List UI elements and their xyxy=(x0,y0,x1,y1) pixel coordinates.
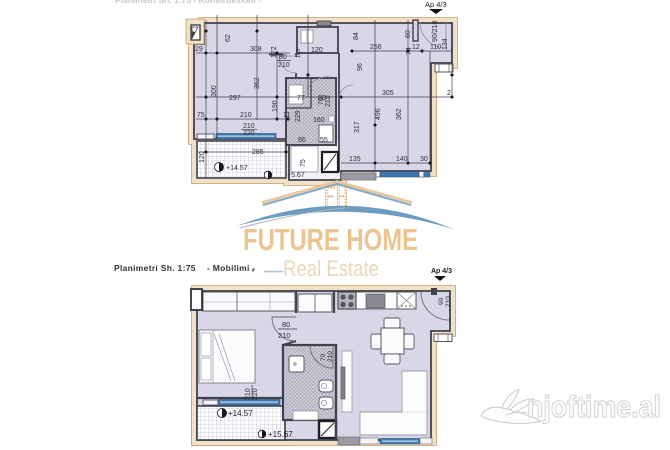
svg-text:Real Estate: Real Estate xyxy=(283,256,379,281)
svg-text:75: 75 xyxy=(300,159,307,167)
svg-text:210: 210 xyxy=(240,112,252,119)
svg-text:220: 220 xyxy=(252,388,259,400)
svg-text:Ap 4/3: Ap 4/3 xyxy=(425,0,447,9)
svg-text:210: 210 xyxy=(245,388,252,400)
svg-text:Planimetri Sh. 1:75 - Konst: Planimetri Sh. 1:75 - Konstruksioni - xyxy=(115,0,261,5)
svg-text:210: 210 xyxy=(325,95,332,107)
svg-text:140: 140 xyxy=(396,156,408,163)
svg-text:297: 297 xyxy=(229,95,241,102)
svg-text:190: 190 xyxy=(272,100,279,112)
svg-text:- Mobilimi -: - Mobilimi - xyxy=(207,263,255,273)
svg-text:62: 62 xyxy=(225,34,232,42)
svg-text:256: 256 xyxy=(370,44,382,51)
svg-text:210: 210 xyxy=(327,351,334,362)
svg-text:285: 285 xyxy=(252,149,264,156)
svg-text:229: 229 xyxy=(295,110,302,122)
svg-text:86: 86 xyxy=(298,137,306,144)
svg-text:77: 77 xyxy=(297,95,305,102)
svg-text:496: 496 xyxy=(375,108,382,120)
svg-text:362: 362 xyxy=(254,77,261,89)
svg-text:Planimetri Sh. 1:75: Planimetri Sh. 1:75 xyxy=(114,263,196,273)
svg-text:30: 30 xyxy=(420,156,428,163)
svg-text:+14.57: +14.57 xyxy=(226,165,248,172)
svg-text:+14.57: +14.57 xyxy=(228,409,253,418)
svg-text:134: 134 xyxy=(442,38,449,50)
svg-text:29: 29 xyxy=(195,46,203,53)
svg-text:75: 75 xyxy=(197,112,205,119)
svg-text:2: 2 xyxy=(447,90,451,97)
svg-text:308: 308 xyxy=(250,46,262,53)
svg-text:305: 305 xyxy=(382,90,394,97)
svg-text:300: 300 xyxy=(211,85,218,97)
svg-text:120: 120 xyxy=(311,47,323,54)
svg-text:96: 96 xyxy=(357,63,364,71)
svg-text:120: 120 xyxy=(199,151,206,163)
svg-text:70: 70 xyxy=(320,353,327,361)
svg-text:+15.67: +15.67 xyxy=(268,430,293,439)
svg-text:160: 160 xyxy=(313,117,325,124)
svg-text:90: 90 xyxy=(438,297,445,305)
svg-text:163: 163 xyxy=(296,49,302,58)
svg-text:njoftime.al: njoftime.al xyxy=(527,389,661,424)
svg-text:135: 135 xyxy=(349,156,361,163)
svg-text:210: 210 xyxy=(278,331,291,340)
svg-text:210: 210 xyxy=(278,62,290,69)
svg-text:55: 55 xyxy=(320,137,328,144)
svg-text:210: 210 xyxy=(243,123,255,130)
svg-text:80: 80 xyxy=(279,54,287,61)
svg-text:11: 11 xyxy=(283,112,290,119)
svg-text:60: 60 xyxy=(405,30,412,38)
svg-text:90/210: 90/210 xyxy=(432,20,439,42)
svg-text:Ap 4/3: Ap 4/3 xyxy=(431,268,452,275)
svg-text:+5.67: +5.67 xyxy=(287,172,305,179)
svg-text:84: 84 xyxy=(353,32,360,40)
svg-text:220: 220 xyxy=(243,130,255,137)
svg-text:210: 210 xyxy=(445,296,452,307)
svg-text:110: 110 xyxy=(430,44,441,51)
svg-text:362: 362 xyxy=(396,108,403,120)
svg-text:317: 317 xyxy=(354,121,361,133)
svg-text:FUTURE HOME: FUTURE HOME xyxy=(243,222,418,257)
svg-text:80: 80 xyxy=(282,320,290,329)
svg-text:70: 70 xyxy=(318,97,325,105)
svg-text:12: 12 xyxy=(412,44,420,51)
